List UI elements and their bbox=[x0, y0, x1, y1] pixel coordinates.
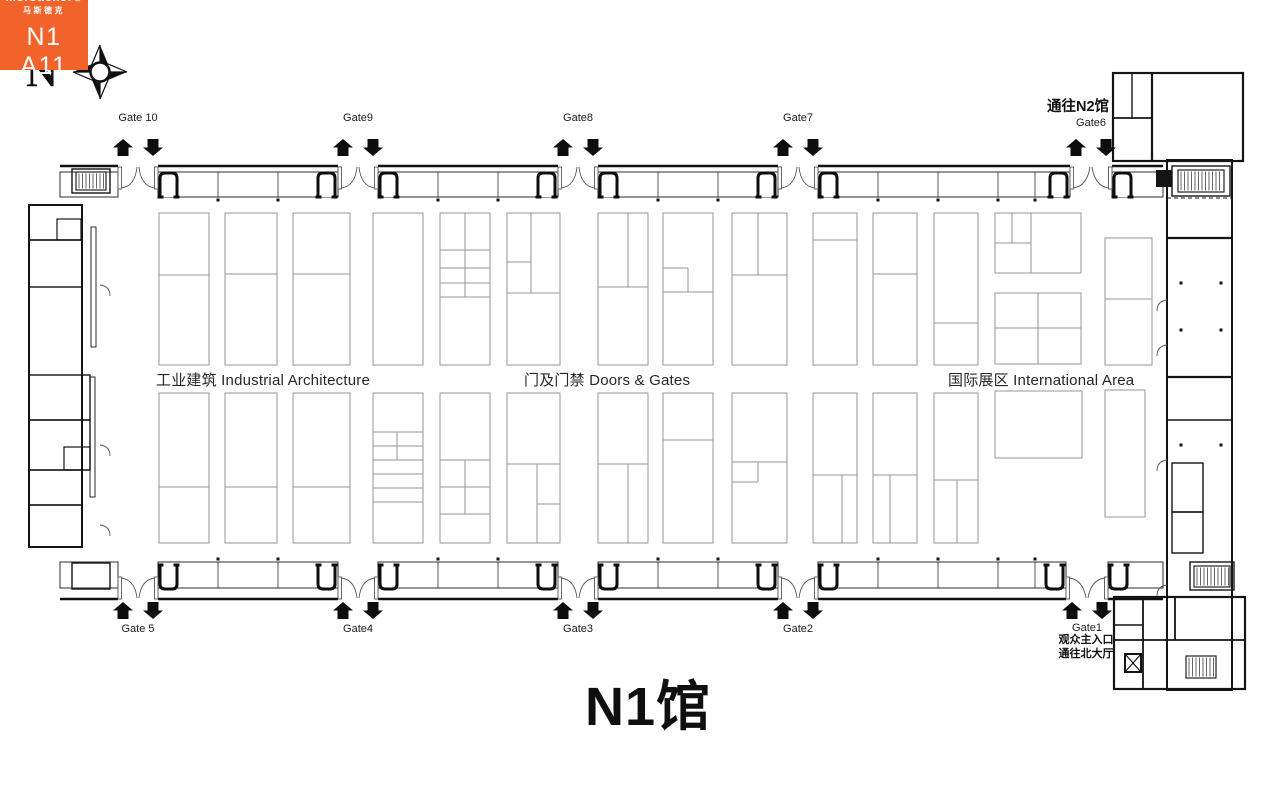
gate-label: Gate4 bbox=[343, 623, 373, 635]
booth-brand-logo: Mörsdekor® bbox=[5, 0, 82, 4]
gate1-entrance-note: 观众主入口 通往北大厅 bbox=[1059, 634, 1114, 661]
gate-label: Gate 10 bbox=[118, 112, 157, 124]
labels-overlay: N 工业建筑 Industrial Architecture 门及门禁 Door… bbox=[0, 0, 1280, 803]
gate-label: Gate1 bbox=[1072, 622, 1102, 634]
gate-label: Gate3 bbox=[563, 623, 593, 635]
booth-number: N1 A11 bbox=[0, 23, 88, 81]
gate-label: Gate2 bbox=[783, 623, 813, 635]
gate-label: Gate 5 bbox=[121, 623, 154, 635]
gate1-note-line2: 通往北大厅 bbox=[1059, 648, 1114, 662]
gate1-note-line1: 观众主入口 bbox=[1059, 634, 1114, 648]
floorplan-canvas: N 工业建筑 Industrial Architecture 门及门禁 Door… bbox=[0, 0, 1280, 803]
area-label-doors-gates: 门及门禁 Doors & Gates bbox=[524, 369, 690, 390]
highlight-booth-n1-a11: Mörsdekor® 马斯德克 N1 A11 bbox=[0, 0, 88, 70]
hall-title: N1馆 bbox=[585, 662, 711, 741]
gate-label: Gate7 bbox=[783, 112, 813, 124]
area-label-international-area: 国际展区 International Area bbox=[948, 369, 1134, 390]
area-label-industrial-architecture: 工业建筑 Industrial Architecture bbox=[156, 369, 370, 390]
booth-brand-chinese: 马斯德克 bbox=[23, 5, 65, 16]
gate-label: Gate9 bbox=[343, 112, 373, 124]
gate-label: Gate6 bbox=[1076, 117, 1106, 129]
to-hall-n2-label: 通往N2馆 bbox=[1047, 95, 1109, 116]
gate-label: Gate8 bbox=[563, 112, 593, 124]
